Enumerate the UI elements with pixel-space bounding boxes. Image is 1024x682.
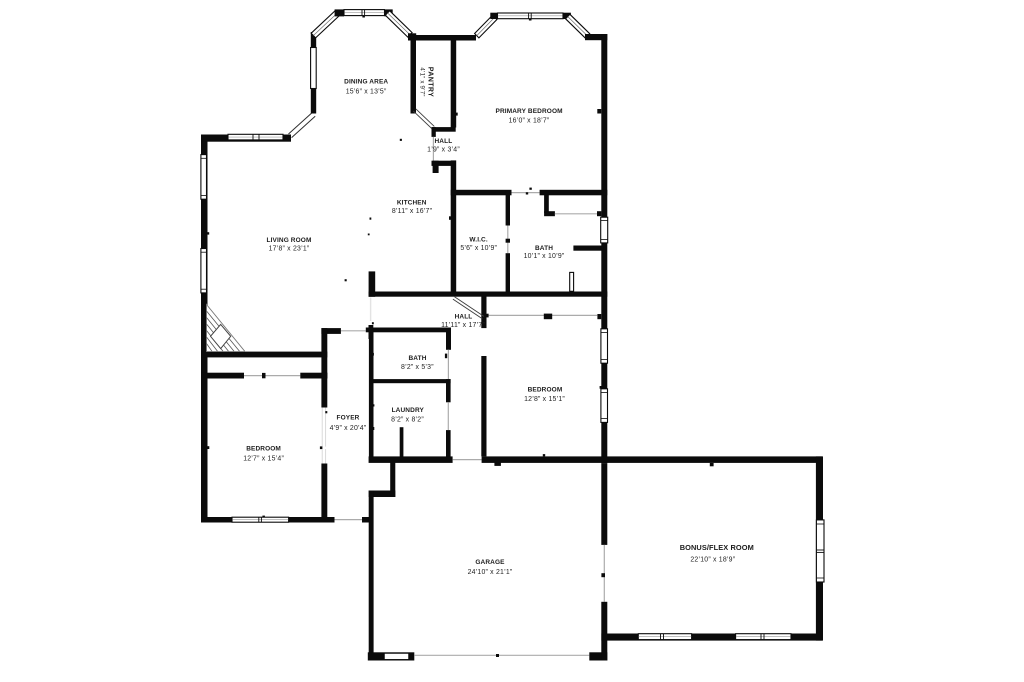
- svg-text:BATH: BATH: [535, 245, 553, 252]
- svg-text:1’9” x 3’4”: 1’9” x 3’4”: [427, 146, 460, 153]
- svg-text:12’8” x 15’1”: 12’8” x 15’1”: [524, 396, 565, 403]
- svg-text:22’10” x 18’9”: 22’10” x 18’9”: [690, 556, 735, 563]
- svg-text:11’11” x 17’7”: 11’11” x 17’7”: [441, 322, 485, 329]
- svg-text:BEDROOM: BEDROOM: [528, 387, 563, 394]
- svg-text:8’2” x 5’3”: 8’2” x 5’3”: [401, 364, 434, 371]
- svg-text:HALL: HALL: [434, 138, 452, 145]
- svg-text:GARAGE: GARAGE: [475, 559, 505, 566]
- svg-text:LIVING ROOM: LIVING ROOM: [266, 237, 311, 244]
- svg-text:17’8” x 23’1”: 17’8” x 23’1”: [269, 245, 310, 252]
- svg-text:PRIMARY BEDROOM: PRIMARY BEDROOM: [496, 108, 563, 115]
- svg-text:8’11” x 16’7”: 8’11” x 16’7”: [392, 208, 433, 215]
- svg-text:4’9” x 20’4”: 4’9” x 20’4”: [330, 425, 367, 432]
- svg-text:BATH: BATH: [408, 355, 426, 362]
- svg-text:15’6” x 13’5”: 15’6” x 13’5”: [346, 88, 387, 95]
- svg-text:5’6” x 10’9”: 5’6” x 10’9”: [460, 245, 497, 252]
- svg-text:12’7” x 15’4”: 12’7” x 15’4”: [243, 455, 284, 462]
- svg-text:FOYER: FOYER: [337, 415, 360, 422]
- svg-text:W.I.C.: W.I.C.: [469, 236, 487, 243]
- svg-text:16’0” x 18’7”: 16’0” x 18’7”: [509, 118, 550, 125]
- svg-text:LAUNDRY: LAUNDRY: [392, 407, 425, 414]
- svg-text:10’1” x 10’9”: 10’1” x 10’9”: [524, 253, 565, 260]
- svg-text:KITCHEN: KITCHEN: [397, 200, 427, 207]
- svg-text:8’2” x 8’2”: 8’2” x 8’2”: [391, 417, 424, 424]
- svg-text:DINING AREA: DINING AREA: [344, 79, 388, 86]
- svg-text:BEDROOM: BEDROOM: [246, 445, 281, 452]
- svg-text:PANTRY: PANTRY: [427, 67, 434, 97]
- svg-text:BONUS/FLEX ROOM: BONUS/FLEX ROOM: [680, 543, 754, 552]
- svg-text:HALL: HALL: [455, 314, 473, 321]
- svg-text:24’10” x 21’1”: 24’10” x 21’1”: [468, 569, 513, 576]
- svg-text:4’1” x 9’7”: 4’1” x 9’7”: [419, 67, 426, 96]
